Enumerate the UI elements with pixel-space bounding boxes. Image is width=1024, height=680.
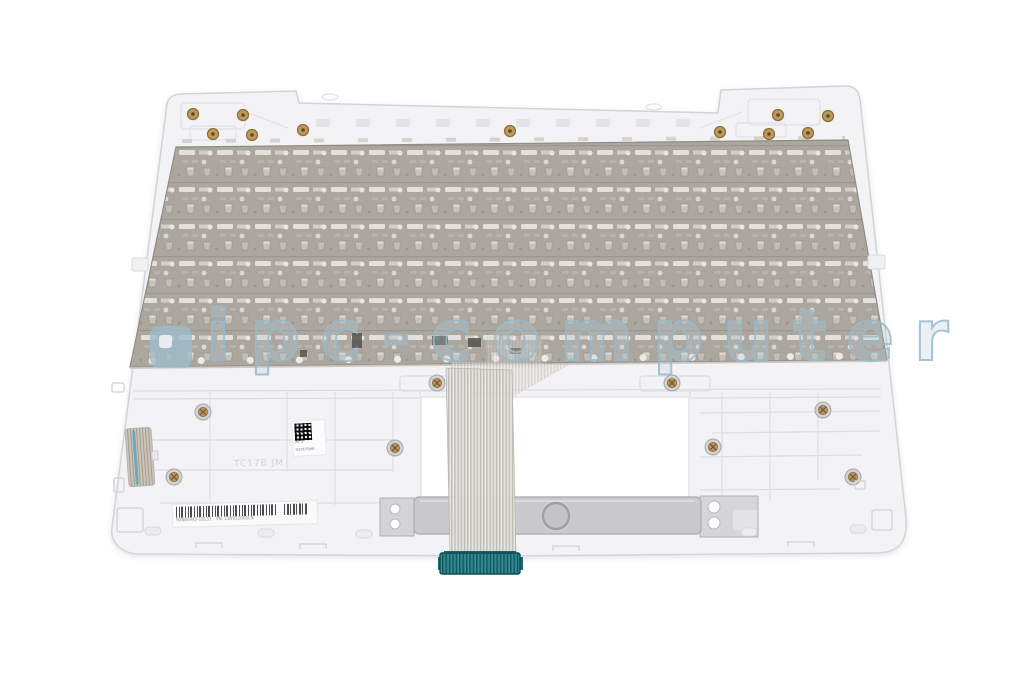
datamatrix-bottom-text: G201TQA6 <box>295 446 325 452</box>
cable-teal-connector <box>438 551 523 574</box>
touchpad-plate-hole <box>543 503 569 529</box>
product-photo: ipc-computer 90NB0943-10133 PN: 13NV2200… <box>0 0 1024 680</box>
datamatrix-side-text: AC 1 <box>295 440 305 444</box>
touchpad-side-bracket-left <box>380 498 414 536</box>
case-side-tab <box>132 258 148 271</box>
palmrest-assembly-photo <box>0 0 1024 680</box>
datamatrix-label: AC 1 G201TQA6 <box>291 419 327 457</box>
barcode-microtext-right: PN: 13NV2200SCN <box>216 516 253 521</box>
case-side-tab <box>868 255 885 269</box>
barcode-label: 90NB0943-10133 PN: 13NV2200SCN <box>172 500 319 528</box>
datamatrix-code <box>294 423 312 441</box>
molded-part-text: TC17B JM <box>234 459 284 470</box>
barcode-microtext-left: 90NB0943-10133 <box>176 517 211 522</box>
